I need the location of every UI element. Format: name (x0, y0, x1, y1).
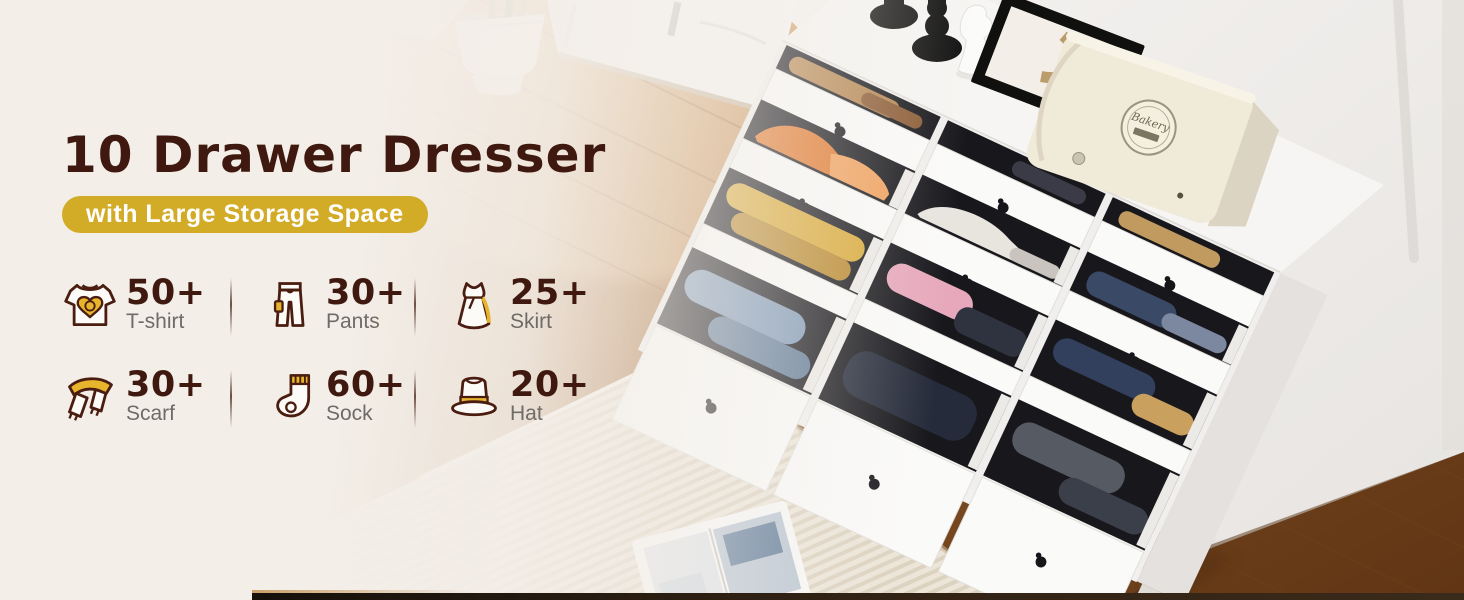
tshirt-icon (62, 277, 118, 333)
stat-count: 30+ (326, 276, 406, 310)
stat-count: 25+ (510, 276, 590, 310)
bottom-strip (252, 593, 1464, 600)
sock-icon (262, 369, 318, 425)
stat-label: Hat (510, 402, 590, 425)
stat-count: 50+ (126, 276, 206, 310)
stat-count: 30+ (126, 368, 206, 402)
stat-pants: 30+ Pants (262, 276, 406, 333)
stat-tshirt: 50+ T-shirt (62, 276, 206, 333)
stat-label: T-shirt (126, 310, 206, 333)
stat-label: Scarf (126, 402, 206, 425)
stat-scarf: 30+ Scarf (62, 368, 206, 425)
stat-divider (414, 370, 416, 428)
stat-count: 60+ (326, 368, 406, 402)
stat-sock: 60+ Sock (262, 368, 406, 425)
stat-label: Pants (326, 310, 406, 333)
stat-hat: 20+ Hat (446, 368, 590, 425)
page-title: 10 Drawer Dresser (62, 126, 606, 184)
stat-divider (414, 278, 416, 336)
stat-divider (230, 278, 232, 336)
stat-count: 20+ (510, 368, 590, 402)
stat-label: Skirt (510, 310, 590, 333)
stat-label: Sock (326, 402, 406, 425)
stat-divider (230, 370, 232, 428)
pants-icon (262, 277, 318, 333)
product-banner: Bakery 10 Drawer Dresser with Large Stor… (0, 0, 1464, 600)
subtitle-badge: with Large Storage Space (62, 196, 428, 233)
skirt-icon (446, 277, 502, 333)
stat-skirt: 25+ Skirt (446, 276, 590, 333)
hat-icon (446, 369, 502, 425)
scarf-icon (62, 369, 118, 425)
